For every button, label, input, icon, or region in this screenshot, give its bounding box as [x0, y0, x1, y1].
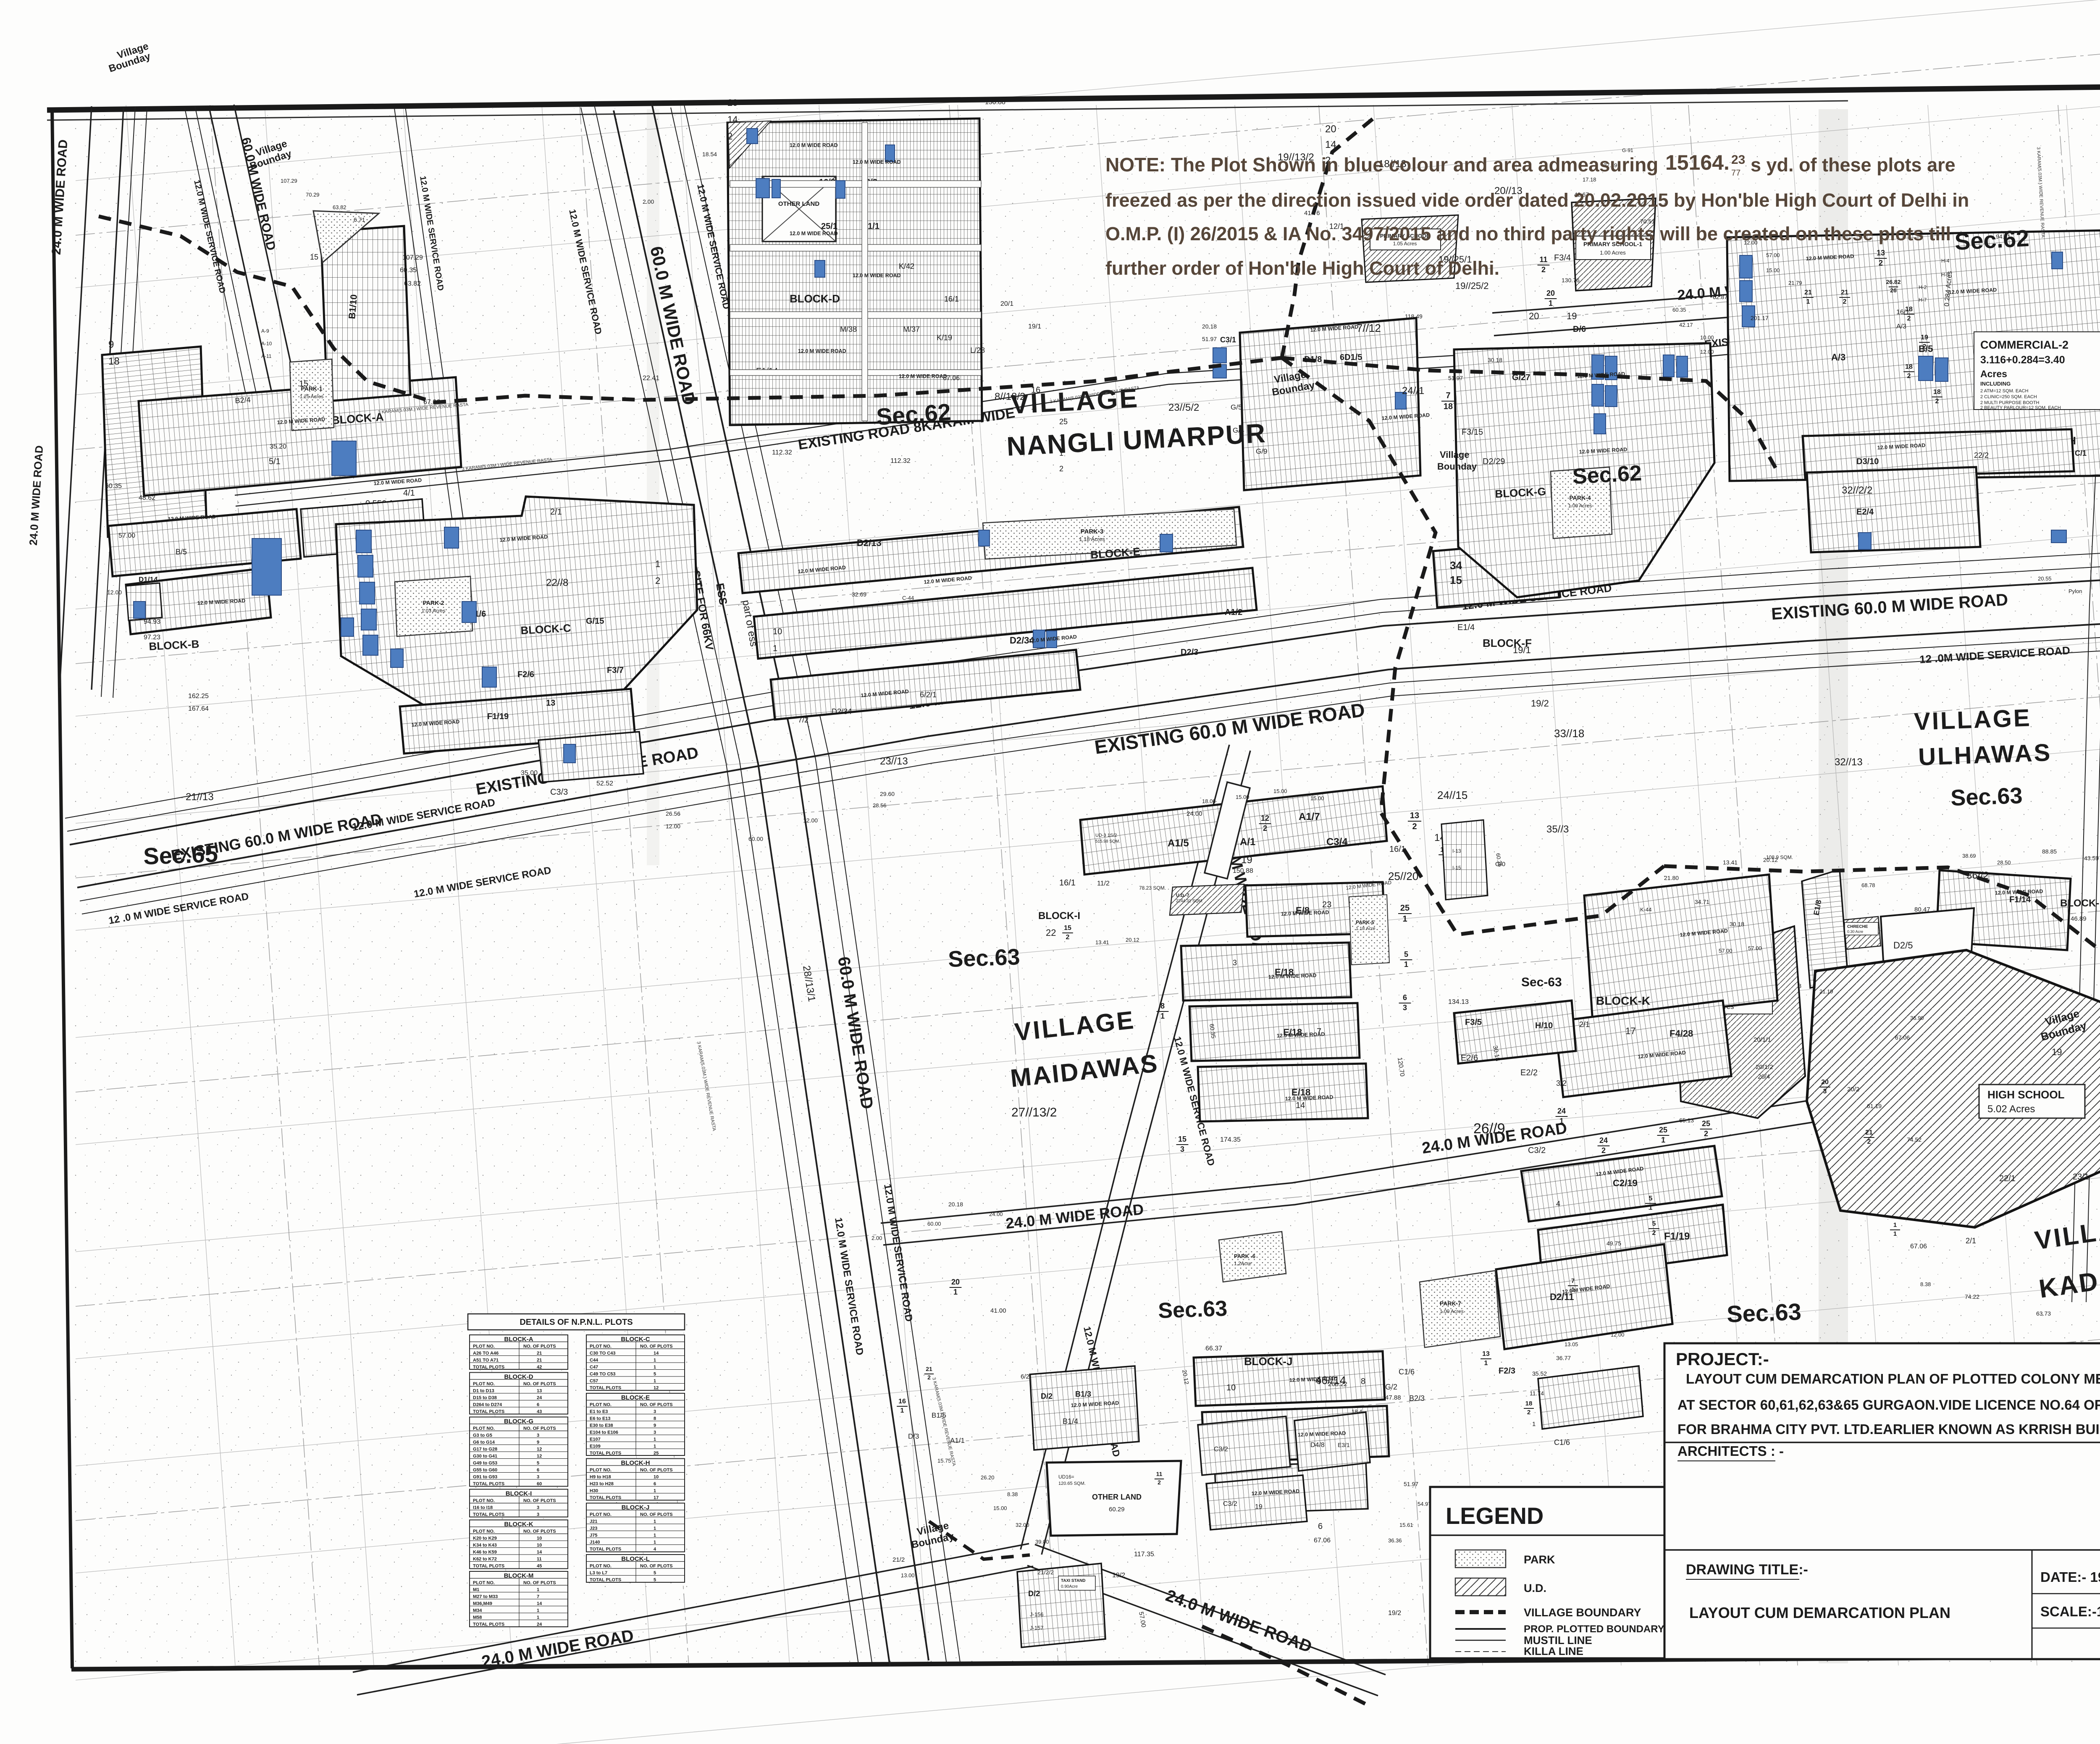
- svg-text:A1/2: A1/2: [1225, 608, 1242, 617]
- svg-text:7: 7: [1446, 391, 1450, 400]
- svg-text:39.00: 39.00: [1035, 1539, 1049, 1545]
- svg-text:1.03 Acres: 1.03 Acres: [422, 608, 446, 614]
- svg-text:1: 1: [1893, 1230, 1897, 1237]
- svg-text:24: 24: [537, 1395, 542, 1400]
- svg-text:47.88: 47.88: [1385, 1394, 1401, 1401]
- svg-text:30.18: 30.18: [1488, 357, 1502, 363]
- svg-text:23/1: 23/1: [2073, 1172, 2089, 1182]
- svg-text:PLOT NO.: PLOT NO.: [473, 1382, 495, 1387]
- svg-text:1.18 Acres: 1.18 Acres: [1079, 536, 1105, 542]
- svg-text:2244.31 SQM.: 2244.31 SQM.: [1176, 899, 1203, 904]
- svg-text:TOTAL PLOTS: TOTAL PLOTS: [473, 1365, 504, 1370]
- svg-text:s yd. of these plots are: s yd. of these plots are: [1751, 154, 1956, 176]
- svg-text:48.62: 48.62: [139, 494, 155, 502]
- svg-text:A-9: A-9: [261, 328, 269, 334]
- svg-text:1: 1: [654, 1365, 656, 1370]
- svg-text:Sec.63: Sec.63: [1726, 1298, 1802, 1327]
- svg-text:TOTAL PLOTS: TOTAL PLOTS: [590, 1547, 621, 1552]
- svg-text:5: 5: [537, 1461, 539, 1466]
- svg-text:130.76: 130.76: [1562, 277, 1580, 284]
- svg-text:1: 1: [1031, 402, 1036, 412]
- svg-text:5: 5: [1404, 950, 1408, 959]
- svg-text:DATE:- 19-12-2015: DATE:- 19-12-2015: [2040, 1569, 2100, 1585]
- svg-text:18: 18: [108, 356, 120, 367]
- svg-text:21//13: 21//13: [186, 791, 214, 803]
- svg-text:PLOT NO.: PLOT NO.: [590, 1344, 612, 1349]
- svg-text:C3/4: C3/4: [1326, 836, 1348, 848]
- svg-text:18: 18: [1525, 1400, 1533, 1407]
- svg-text:C44: C44: [590, 1358, 598, 1363]
- svg-text:Pylon: Pylon: [2068, 588, 2082, 594]
- svg-text:1: 1: [1402, 914, 1407, 924]
- svg-text:63.82: 63.82: [404, 280, 421, 287]
- svg-text:20.55: 20.55: [2038, 575, 2052, 582]
- svg-text:2: 2: [727, 131, 732, 142]
- svg-text:6: 6: [654, 1481, 656, 1487]
- svg-text:14: 14: [727, 114, 738, 125]
- svg-text:12.00: 12.00: [803, 817, 818, 824]
- svg-text:B1/3: B1/3: [1075, 1390, 1091, 1398]
- svg-text:1: 1: [900, 1407, 904, 1414]
- svg-text:B2/4: B2/4: [235, 395, 251, 405]
- svg-text:24.00: 24.00: [989, 1211, 1003, 1217]
- svg-text:U.D.-7: U.D.-7: [1176, 893, 1189, 898]
- svg-text:PLOT NO.: PLOT NO.: [473, 1426, 495, 1431]
- svg-text:Sec.65: Sec.65: [143, 840, 218, 869]
- svg-text:167.64: 167.64: [188, 705, 209, 712]
- svg-text:117.35: 117.35: [1134, 1551, 1154, 1558]
- svg-text:36.36: 36.36: [1388, 1537, 1402, 1544]
- svg-text:1: 1: [1160, 1012, 1165, 1020]
- svg-text:17: 17: [1625, 1026, 1635, 1036]
- svg-text:4/1: 4/1: [403, 489, 415, 498]
- svg-text:3: 3: [654, 1430, 656, 1435]
- svg-text:14: 14: [654, 1351, 659, 1356]
- svg-text:1: 1: [654, 1540, 656, 1545]
- svg-text:7: 7: [537, 1594, 539, 1600]
- svg-text:21: 21: [1841, 289, 1848, 296]
- svg-text:2/1: 2/1: [1966, 1237, 1976, 1245]
- svg-text:25: 25: [1659, 1126, 1667, 1134]
- svg-text:LAYOUT CUM DEMARCATION PLAN OF: LAYOUT CUM DEMARCATION PLAN OF PLOTTED C…: [1686, 1371, 2100, 1387]
- svg-text:30.18: 30.18: [1730, 921, 1744, 927]
- svg-text:E104 to E106: E104 to E106: [590, 1430, 618, 1435]
- svg-text:ULHAWAS: ULHAWAS: [1918, 739, 2052, 771]
- svg-text:18: 18: [1444, 402, 1453, 411]
- svg-text:12.0 M WIDE ROAD: 12.0 M WIDE ROAD: [853, 159, 901, 165]
- svg-text:H/10: H/10: [1535, 1021, 1553, 1030]
- svg-text:15.00: 15.00: [1273, 788, 1287, 794]
- svg-text:3: 3: [1233, 959, 1237, 967]
- svg-text:2: 2: [1066, 934, 1070, 941]
- svg-text:21/2: 21/2: [892, 1556, 905, 1563]
- svg-text:5: 5: [654, 1571, 656, 1576]
- svg-text:11: 11: [1539, 255, 1547, 264]
- svg-text:E2/6: E2/6: [1461, 1053, 1478, 1063]
- svg-text:19/2: 19/2: [1388, 1610, 1401, 1617]
- svg-text:43.59: 43.59: [2084, 855, 2099, 861]
- svg-text:15: 15: [1064, 925, 1071, 932]
- svg-text:515.98 SQM.: 515.98 SQM.: [1095, 839, 1120, 844]
- svg-text:E30 to E38: E30 to E38: [590, 1423, 613, 1428]
- svg-text:C47: C47: [590, 1365, 598, 1370]
- svg-text:21.79: 21.79: [1788, 280, 1802, 286]
- svg-text:23: 23: [1322, 900, 1331, 909]
- svg-text:G55 to G60: G55 to G60: [473, 1468, 497, 1473]
- svg-text:PLOT NO.: PLOT NO.: [590, 1512, 612, 1517]
- svg-text:12: 12: [537, 1447, 542, 1452]
- svg-text:22/2: 22/2: [1974, 451, 1989, 460]
- svg-text:C3/1: C3/1: [1220, 336, 1236, 344]
- svg-text:M/37: M/37: [903, 325, 920, 334]
- svg-text:10: 10: [537, 1543, 542, 1548]
- svg-text:Village: Village: [1440, 449, 1470, 460]
- svg-text:32//13: 32//13: [1835, 756, 1863, 768]
- svg-text:2: 2: [1059, 465, 1063, 473]
- svg-text:2: 2: [1907, 315, 1911, 322]
- svg-text:51.97: 51.97: [1404, 1481, 1418, 1487]
- svg-text:PARK-4: PARK-4: [1569, 494, 1591, 501]
- svg-text:174.35: 174.35: [1220, 1136, 1241, 1143]
- svg-text:G/9: G/9: [1256, 447, 1267, 455]
- svg-text:15: 15: [1178, 1135, 1186, 1143]
- svg-text:80.47: 80.47: [1914, 906, 1930, 913]
- svg-text:D15 to D38: D15 to D38: [473, 1395, 497, 1400]
- svg-text:Bounday: Bounday: [1437, 461, 1477, 472]
- svg-text:3: 3: [654, 1409, 656, 1414]
- svg-text:3: 3: [537, 1433, 539, 1438]
- svg-text:6D1/5: 6D1/5: [1340, 353, 1362, 362]
- svg-text:TOTAL PLOTS: TOTAL PLOTS: [590, 1386, 621, 1391]
- svg-text:B1/4: B1/4: [1063, 1417, 1078, 1426]
- svg-text:11/2: 11/2: [1097, 880, 1110, 887]
- svg-text:U.D.: U.D.: [1524, 1582, 1546, 1594]
- svg-text:2: 2: [1541, 265, 1546, 274]
- svg-text:AT SECTOR 60,61,62,63&65 GURGA: AT SECTOR 60,61,62,63&65 GURGAON.VIDE LI…: [1677, 1397, 2100, 1413]
- svg-text:13.41: 13.41: [1723, 859, 1738, 866]
- svg-text:C1/6: C1/6: [1399, 1368, 1415, 1376]
- svg-text:1.00 Acres: 1.00 Acres: [1440, 1308, 1464, 1314]
- svg-text:B2/3: B2/3: [1409, 1394, 1425, 1403]
- svg-text:107.29: 107.29: [402, 254, 423, 261]
- svg-text:G49 to G53: G49 to G53: [473, 1461, 497, 1466]
- svg-text:DRAWING TITLE:-: DRAWING TITLE:-: [1686, 1562, 1808, 1578]
- svg-text:7: 7: [1571, 1277, 1575, 1284]
- svg-text:PARK-3: PARK-3: [1081, 528, 1104, 535]
- svg-text:COMMERCIAL-2: COMMERCIAL-2: [1980, 339, 2068, 351]
- svg-text:25//20: 25//20: [1388, 870, 1418, 883]
- svg-text:11.74: 11.74: [1530, 1390, 1544, 1397]
- svg-text:20: 20: [1529, 311, 1539, 321]
- svg-text:D3/10: D3/10: [1856, 457, 1879, 466]
- svg-text:12: 12: [1261, 814, 1269, 822]
- svg-text:11: 11: [1156, 1471, 1163, 1477]
- svg-text:2: 2: [1412, 822, 1417, 831]
- svg-text:K/19: K/19: [937, 334, 952, 342]
- svg-text:22: 22: [1046, 927, 1056, 938]
- svg-text:21.80: 21.80: [1664, 875, 1679, 881]
- svg-text:22.41: 22.41: [643, 375, 659, 382]
- svg-text:TOTAL PLOTS: TOTAL PLOTS: [590, 1495, 621, 1500]
- svg-text:LEGEND: LEGEND: [1446, 1502, 1543, 1529]
- svg-text:60.35: 60.35: [400, 267, 417, 274]
- svg-text:HIGH SCHOOL: HIGH SCHOOL: [1987, 1088, 2065, 1101]
- svg-text:3: 3: [1823, 1088, 1827, 1095]
- svg-text:19: 19: [1241, 854, 1252, 866]
- svg-text:PLOT NO.: PLOT NO.: [590, 1564, 612, 1569]
- svg-text:20.18: 20.18: [1202, 323, 1217, 330]
- svg-text:NO. OF PLOTS: NO. OF PLOTS: [640, 1468, 673, 1473]
- svg-text:29.60: 29.60: [880, 791, 895, 797]
- svg-text:Sec.63: Sec.63: [1158, 1296, 1228, 1323]
- svg-text:23//5/2: 23//5/2: [1168, 402, 1199, 413]
- svg-text:C30 TO C43: C30 TO C43: [590, 1351, 616, 1356]
- svg-text:6: 6: [537, 1468, 539, 1473]
- svg-text:12.00: 12.00: [1611, 1332, 1625, 1338]
- svg-text:32.69: 32.69: [852, 591, 866, 598]
- svg-text:18.4: 18.4: [1352, 1408, 1362, 1415]
- svg-text:1: 1: [654, 1533, 656, 1538]
- svg-text:1: 1: [1559, 1117, 1564, 1125]
- svg-text:H-5: H-5: [1941, 272, 1950, 278]
- svg-text:2: 2: [1879, 259, 1883, 267]
- svg-text:36.77: 36.77: [1556, 1355, 1571, 1361]
- svg-text:20: 20: [727, 97, 738, 108]
- svg-text:25: 25: [654, 1451, 659, 1456]
- svg-text:27//13/2: 27//13/2: [1011, 1106, 1057, 1119]
- svg-text:BLOCK-C: BLOCK-C: [520, 622, 571, 637]
- svg-text:9: 9: [654, 1423, 656, 1428]
- svg-text:L3 to L7: L3 to L7: [590, 1571, 607, 1576]
- svg-text:D2/3: D2/3: [1181, 648, 1198, 657]
- svg-text:2: 2: [1867, 1138, 1871, 1145]
- svg-text:further order of Hon'ble High: further order of Hon'ble High Court of D…: [1105, 257, 1499, 279]
- svg-text:E6 to E13: E6 to E13: [590, 1416, 611, 1421]
- svg-text:PARK -6: PARK -6: [1234, 1253, 1255, 1259]
- svg-text:2: 2: [1704, 1129, 1708, 1138]
- svg-text:26.56: 26.56: [666, 810, 680, 817]
- svg-text:G-91: G-91: [1622, 147, 1633, 153]
- svg-text:F2/6: F2/6: [517, 670, 534, 679]
- svg-text:19//25/2: 19//25/2: [1455, 281, 1489, 291]
- svg-text:1: 1: [1404, 960, 1408, 969]
- svg-text:1.2Acre: 1.2Acre: [1234, 1261, 1252, 1266]
- svg-text:112.32: 112.32: [772, 449, 792, 456]
- svg-text:21: 21: [1865, 1129, 1873, 1136]
- svg-text:1: 1: [654, 1379, 656, 1384]
- svg-text:I-13: I-13: [1452, 848, 1461, 854]
- svg-text:F3/4: F3/4: [1554, 253, 1571, 263]
- svg-text:NO. OF PLOTS: NO. OF PLOTS: [640, 1564, 673, 1569]
- svg-text:15: 15: [299, 379, 308, 389]
- svg-text:3: 3: [537, 1475, 539, 1480]
- svg-text:C57: C57: [590, 1379, 598, 1384]
- svg-text:2 ATM=12 SQM. EACH: 2 ATM=12 SQM. EACH: [1980, 389, 2028, 394]
- svg-text:15: 15: [1450, 574, 1462, 586]
- svg-text:15.00: 15.00: [1310, 795, 1324, 801]
- svg-text:7//12: 7//12: [1357, 322, 1381, 334]
- svg-text:PARK-7: PARK-7: [1440, 1300, 1461, 1307]
- svg-text:A/3: A/3: [1896, 323, 1906, 330]
- svg-text:A/1: A/1: [1240, 836, 1255, 848]
- svg-text:H9 to H18: H9 to H18: [590, 1475, 611, 1480]
- svg-text:33//18: 33//18: [1554, 727, 1584, 740]
- svg-text:42.17: 42.17: [1679, 322, 1693, 328]
- svg-text:12.00: 12.00: [1700, 349, 1714, 355]
- svg-text:1.00 Acres: 1.00 Acres: [1568, 503, 1592, 509]
- svg-text:H30: H30: [590, 1489, 598, 1494]
- svg-text:2: 2: [1907, 373, 1911, 380]
- svg-text:Sec.62: Sec.62: [1954, 225, 2030, 255]
- svg-text:1: 1: [1549, 299, 1553, 307]
- svg-text:C49 TO C53: C49 TO C53: [590, 1372, 616, 1377]
- svg-text:60.35: 60.35: [105, 483, 122, 490]
- svg-text:22/1: 22/1: [1999, 1174, 2016, 1183]
- svg-text:36//2: 36//2: [1966, 870, 1989, 881]
- svg-text:38.69: 38.69: [1962, 853, 1976, 859]
- svg-text:M58: M58: [473, 1615, 482, 1620]
- svg-text:J21: J21: [590, 1519, 597, 1524]
- svg-text:19: 19: [1255, 1503, 1263, 1510]
- svg-text:16/1: 16/1: [1389, 845, 1406, 854]
- svg-text:J23: J23: [590, 1526, 597, 1531]
- svg-text:34: 34: [1450, 559, 1462, 572]
- svg-text:20/4: 20/4: [1758, 1073, 1770, 1080]
- svg-text:35//3: 35//3: [1546, 824, 1569, 835]
- svg-text:18: 18: [1905, 363, 1913, 370]
- svg-text:65.13: 65.13: [1679, 1117, 1694, 1124]
- svg-text:61.19: 61.19: [1867, 1103, 1882, 1109]
- svg-text:PLOT NO.: PLOT NO.: [473, 1529, 495, 1534]
- svg-text:15.00: 15.00: [993, 1505, 1007, 1511]
- svg-text:C/1: C/1: [2075, 449, 2087, 457]
- svg-text:13: 13: [1410, 811, 1419, 820]
- svg-text:BLOCK-I: BLOCK-I: [1038, 910, 1080, 922]
- svg-text:2.00: 2.00: [871, 1235, 882, 1241]
- svg-text:1: 1: [654, 1489, 656, 1494]
- svg-text:C3/2: C3/2: [1214, 1446, 1228, 1453]
- svg-text:12.0 M WIDE ROAD: 12.0 M WIDE ROAD: [853, 273, 901, 278]
- svg-text:TOTAL PLOTS: TOTAL PLOTS: [473, 1512, 504, 1517]
- svg-text:F3/15: F3/15: [1462, 428, 1483, 437]
- svg-text:19: 19: [1567, 311, 1577, 321]
- svg-text:32//2/2: 32//2/2: [1842, 485, 1872, 496]
- svg-text:24.00: 24.00: [1186, 810, 1202, 817]
- svg-text:KILLA LINE: KILLA LINE: [1524, 1645, 1583, 1657]
- svg-text:2: 2: [1652, 1229, 1656, 1237]
- svg-text:4: 4: [1556, 1200, 1560, 1208]
- svg-text:13.41: 13.41: [1095, 939, 1109, 946]
- svg-text:2: 2: [1263, 824, 1267, 833]
- svg-text:20/1: 20/1: [1000, 300, 1013, 307]
- svg-text:21: 21: [537, 1351, 542, 1356]
- svg-text:21: 21: [1804, 289, 1812, 296]
- svg-text:3: 3: [537, 1512, 539, 1517]
- svg-text:60.35: 60.35: [1672, 307, 1686, 313]
- svg-text:PARK-2: PARK-2: [423, 599, 444, 606]
- svg-text:20/1/1: 20/1/1: [1753, 1036, 1771, 1043]
- svg-text:BLOCK-G: BLOCK-G: [1495, 485, 1546, 500]
- svg-text:TOTAL PLOTS: TOTAL PLOTS: [473, 1409, 504, 1414]
- svg-text:BLOCK-J: BLOCK-J: [1244, 1355, 1293, 1368]
- svg-text:TAXI STAND: TAXI STAND: [1061, 1579, 1086, 1583]
- svg-text:K34 to K43: K34 to K43: [473, 1543, 497, 1548]
- svg-text:3: 3: [1180, 1145, 1184, 1153]
- svg-text:NO. OF PLOTS: NO. OF PLOTS: [523, 1382, 556, 1387]
- svg-text:G/5: G/5: [1231, 403, 1242, 411]
- svg-text:10: 10: [1226, 1383, 1236, 1392]
- svg-text:43: 43: [537, 1409, 542, 1414]
- svg-text:LAYOUT CUM DEMARCATION PLAN: LAYOUT CUM DEMARCATION PLAN: [1689, 1604, 1950, 1621]
- svg-text:PLOT NO.: PLOT NO.: [590, 1468, 612, 1473]
- svg-text:20: 20: [1821, 1079, 1829, 1086]
- svg-text:21: 21: [537, 1358, 542, 1363]
- svg-text:15.75: 15.75: [937, 1458, 951, 1464]
- svg-text:14: 14: [537, 1601, 542, 1606]
- svg-text:25: 25: [1059, 418, 1068, 426]
- svg-text:10: 10: [537, 1536, 542, 1541]
- svg-text:D/3: D/3: [908, 1432, 919, 1440]
- svg-text:60.00: 60.00: [927, 1221, 941, 1227]
- svg-text:0.30 Acre: 0.30 Acre: [1847, 930, 1863, 934]
- svg-text:19: 19: [2052, 1047, 2062, 1057]
- svg-text:3/2: 3/2: [1556, 1079, 1567, 1087]
- svg-text:TOTAL PLOTS: TOTAL PLOTS: [590, 1451, 621, 1456]
- svg-text:PLOT NO.: PLOT NO.: [473, 1344, 495, 1349]
- svg-text:TOTAL PLOTS: TOTAL PLOTS: [590, 1578, 621, 1583]
- svg-text:112.32: 112.32: [890, 457, 911, 465]
- svg-text:6: 6: [537, 1403, 539, 1408]
- svg-text:25: 25: [1702, 1119, 1710, 1128]
- svg-text:K-44: K-44: [1640, 906, 1651, 913]
- svg-text:NO. OF PLOTS: NO. OF PLOTS: [523, 1581, 556, 1586]
- svg-text:ARCHITECTS : -: ARCHITECTS : -: [1677, 1443, 1784, 1459]
- svg-text:2: 2: [1923, 343, 1927, 350]
- svg-text:Sec-63: Sec-63: [1521, 975, 1562, 989]
- svg-text:6: 6: [1318, 1522, 1323, 1531]
- svg-text:14: 14: [537, 1550, 542, 1555]
- svg-text:G91 to G93: G91 to G93: [473, 1475, 497, 1480]
- svg-text:60.29: 60.29: [1109, 1506, 1125, 1513]
- svg-text:5.02 Acres: 5.02 Acres: [1987, 1103, 2035, 1115]
- svg-text:19/1: 19/1: [1028, 323, 1041, 330]
- svg-text:J75: J75: [590, 1533, 597, 1538]
- svg-text:2/1: 2/1: [550, 507, 562, 517]
- svg-text:A/3: A/3: [1831, 352, 1845, 362]
- svg-text:60: 60: [537, 1481, 542, 1487]
- svg-text:28.56: 28.56: [873, 802, 887, 809]
- svg-text:19: 19: [1921, 334, 1928, 341]
- svg-text:D2/34: D2/34: [832, 707, 852, 716]
- svg-text:DETAILS OF N.P.N.L. PLOTS: DETAILS OF N.P.N.L. PLOTS: [520, 1318, 633, 1327]
- svg-text:1: 1: [1661, 1136, 1665, 1144]
- svg-text:J-157: J-157: [1030, 1625, 1044, 1631]
- svg-text:67.06: 67.06: [1314, 1537, 1331, 1544]
- svg-text:20/2: 20/2: [1847, 1086, 1859, 1093]
- svg-text:NO. OF PLOTS: NO. OF PLOTS: [523, 1498, 556, 1503]
- svg-text:NO. OF PLOTS: NO. OF PLOTS: [523, 1426, 556, 1431]
- svg-text:H23 to H28: H23 to H28: [590, 1481, 614, 1487]
- svg-text:26.82: 26.82: [1886, 278, 1900, 285]
- svg-text:12.0 M WIDE ROAD: 12.0 M WIDE ROAD: [790, 231, 838, 236]
- svg-text:1: 1: [1893, 1221, 1897, 1229]
- svg-text:2 MULTI PURPOSE BOOTH: 2 MULTI PURPOSE BOOTH: [1980, 400, 2039, 405]
- svg-text:8.38: 8.38: [1920, 1281, 1931, 1287]
- svg-text:D264 to D274: D264 to D274: [473, 1403, 502, 1408]
- svg-text:1: 1: [654, 1444, 656, 1449]
- svg-text:9: 9: [108, 339, 114, 350]
- svg-text:70.29: 70.29: [306, 192, 320, 198]
